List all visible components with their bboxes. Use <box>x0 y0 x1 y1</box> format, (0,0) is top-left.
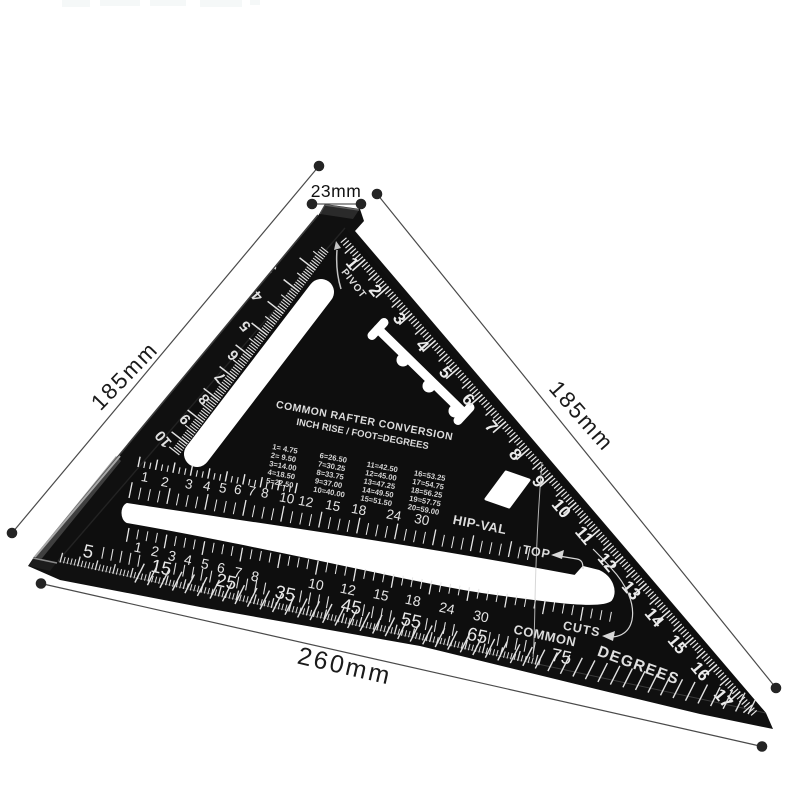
svg-text:12: 12 <box>297 493 315 511</box>
svg-text:25: 25 <box>214 569 238 594</box>
svg-text:15: 15 <box>324 497 342 515</box>
svg-text:23mm: 23mm <box>311 181 362 201</box>
svg-text:35: 35 <box>273 581 297 606</box>
svg-text:18: 18 <box>350 501 368 519</box>
svg-text:10: 10 <box>278 489 296 507</box>
svg-text:45: 45 <box>339 594 363 619</box>
